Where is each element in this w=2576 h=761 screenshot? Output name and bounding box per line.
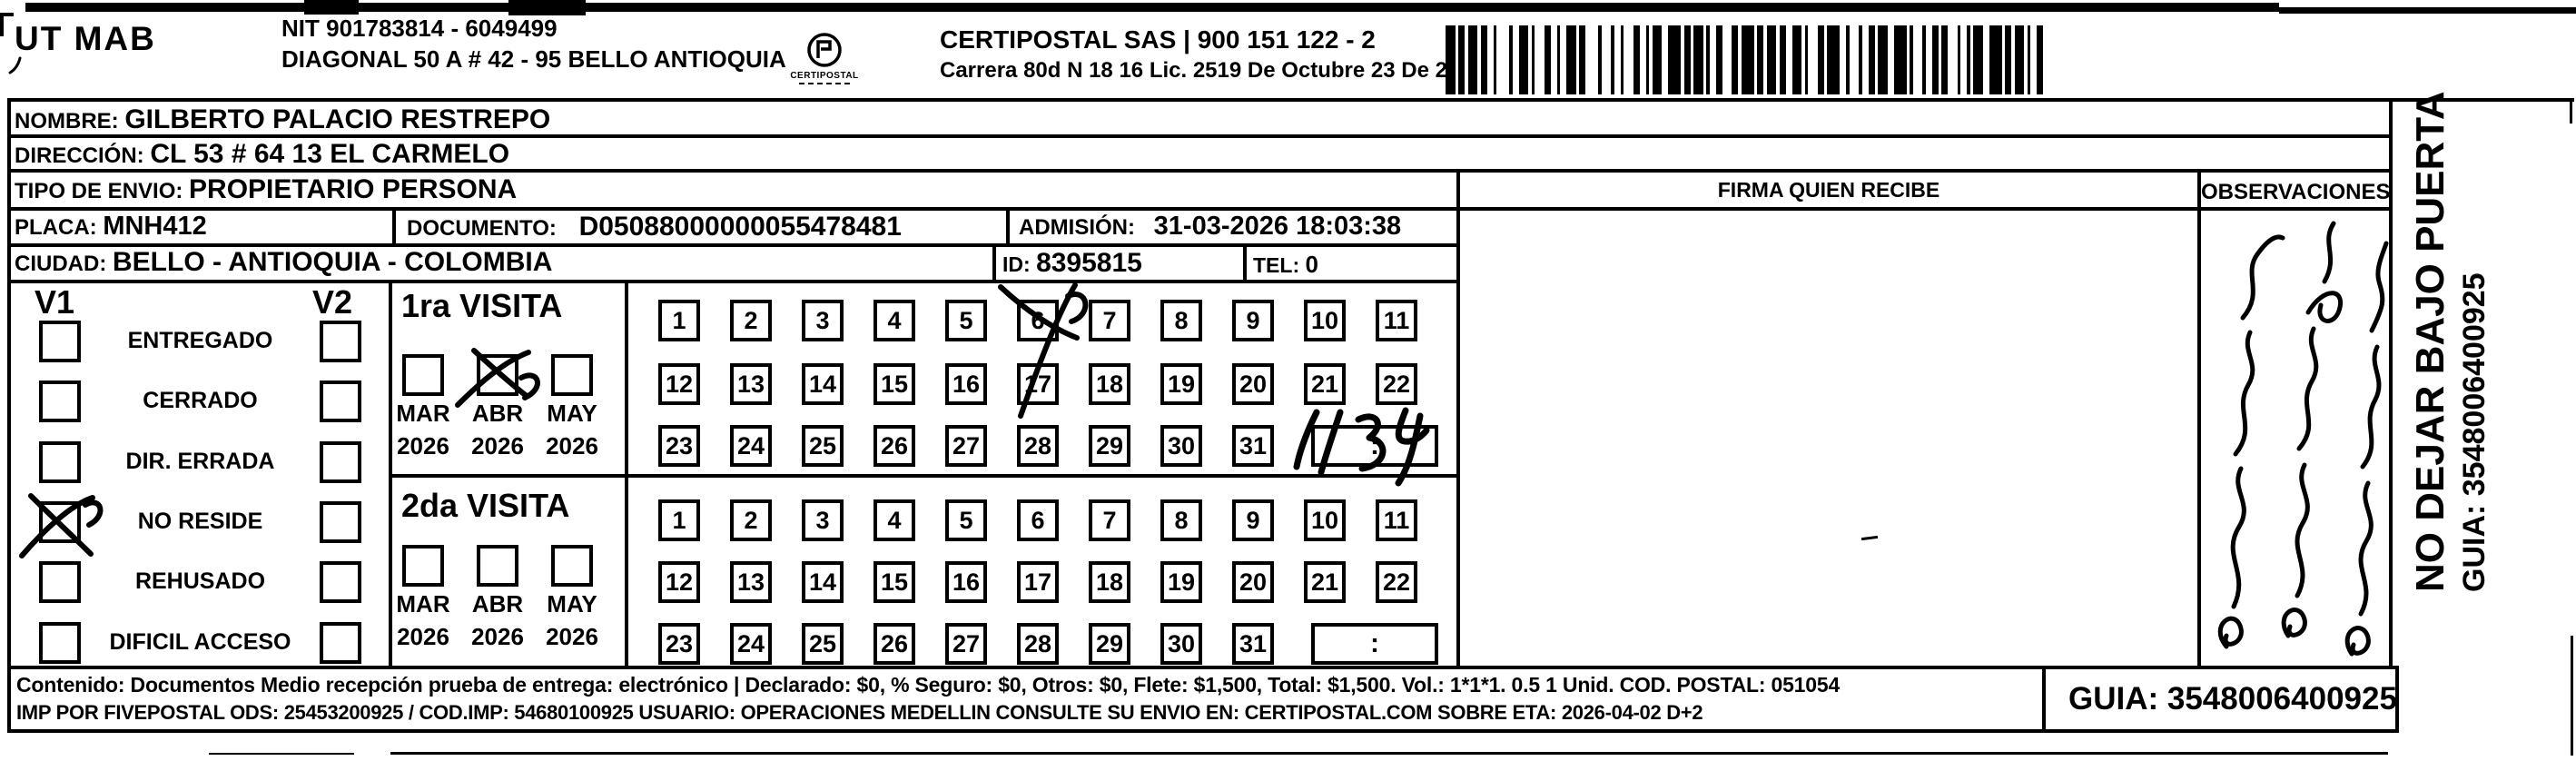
month-checkbox[interactable]	[402, 545, 444, 587]
barcode-bar	[1668, 25, 1681, 94]
barcode-bar	[1716, 25, 1722, 94]
status-row: REHUSADO	[7, 561, 389, 605]
day-cell[interactable]: 12	[658, 363, 700, 405]
scan-artifact	[2570, 100, 2572, 124]
day-cell[interactable]: 20	[1232, 363, 1274, 405]
status-row: DIFICIL ACCESO	[7, 622, 389, 666]
day-cell[interactable]: 21	[1304, 363, 1346, 405]
day-row: 1234567891011	[658, 300, 1417, 341]
day-cell[interactable]: 24	[730, 425, 772, 467]
postal-delivery-label: UT MAB NIT 901783814 - 6049499 DIAGONAL …	[0, 0, 2576, 761]
grid-line	[2042, 666, 2046, 733]
day-cell[interactable]: 17	[1017, 561, 1059, 603]
barcode-bar	[2037, 25, 2043, 94]
footer-content-line: Contenido: Documentos Medio recepción pr…	[16, 673, 1840, 697]
day-cell[interactable]: 19	[1160, 561, 1202, 603]
v1-checkbox[interactable]	[39, 622, 81, 664]
day-cell[interactable]: 20	[1232, 561, 1274, 603]
placa-value: MNH412	[103, 212, 206, 241]
barcode-bar	[2005, 25, 2011, 94]
day-cell[interactable]: 1	[658, 499, 700, 541]
day-cell[interactable]: 4	[873, 300, 915, 341]
day-cell[interactable]: 31	[1232, 623, 1274, 665]
second-visit-panel: 2da VISITA MAR2026ABR2026MAY2026	[389, 479, 625, 667]
tipo-envio-value: PROPIETARIO PERSONA	[189, 174, 517, 204]
scan-artifact	[2279, 7, 2576, 14]
status-row: CERRADO	[7, 380, 389, 424]
barcode-bar	[1932, 25, 1939, 94]
no-dejar-bajo-puerta-text: NO DEJAR BAJO PUERTA	[2408, 106, 2453, 592]
logo-text: CERTIPOSTAL	[788, 71, 861, 81]
day-cell[interactable]: 19	[1160, 363, 1202, 405]
barcode-bar	[1818, 25, 1824, 94]
grid-line	[1006, 207, 1010, 247]
grid-line	[392, 207, 396, 247]
footer-imp-line: IMP POR FIVEPOSTAL ODS: 25453200925 / CO…	[16, 701, 1703, 725]
ciudad-label: CIUDAD:	[15, 252, 113, 276]
day-cell[interactable]: 12	[658, 561, 700, 603]
certipostal-logo-icon: CERTIPOSTAL	[788, 31, 861, 84]
barcode-gap	[1722, 25, 1732, 94]
day-cell[interactable]: 29	[1089, 425, 1130, 467]
barcode-gap	[1614, 25, 1621, 94]
day-cell[interactable]: 28	[1017, 425, 1059, 467]
barcode-gap	[1960, 25, 1967, 94]
status-row: ENTREGADO	[7, 321, 389, 364]
ut-mab-comma-artifact	[10, 58, 20, 73]
month-label: ABR	[466, 590, 529, 618]
day-cell[interactable]: 31	[1232, 425, 1274, 467]
v2-checkbox[interactable]	[320, 561, 361, 603]
barcode-bar	[1481, 25, 1487, 94]
day-cell[interactable]: 14	[802, 363, 844, 405]
status-label: CERRADO	[89, 388, 311, 414]
barcode-gap	[1496, 25, 1509, 94]
placa-label: PLACA:	[15, 215, 103, 240]
day-cell[interactable]: 23	[658, 623, 700, 665]
time-box[interactable]: :	[1311, 425, 1438, 467]
nombre-label: NOMBRE:	[15, 109, 124, 133]
firma-header: FIRMA QUIEN RECIBE	[1460, 178, 2197, 203]
day-cell[interactable]: 17	[1017, 363, 1059, 405]
barcode-bar	[1693, 25, 1703, 94]
barcode-bar	[1519, 25, 1529, 94]
barcode-bar	[1732, 25, 1738, 94]
month-year-label: 2026	[540, 432, 604, 460]
barcode-gap	[1948, 25, 1958, 94]
grid-line	[7, 729, 2399, 733]
day-cell[interactable]: 3	[802, 300, 844, 341]
month-checkbox[interactable]	[551, 545, 593, 587]
time-colon: :	[1370, 628, 1379, 659]
month-label: MAR	[391, 590, 455, 618]
day-cell[interactable]: 28	[1017, 623, 1059, 665]
day-cell[interactable]: 21	[1304, 561, 1346, 603]
day-cell[interactable]: 13	[730, 561, 772, 603]
day-cell[interactable]: 30	[1160, 623, 1202, 665]
barcode-icon	[1446, 25, 2390, 94]
barcode-gap	[1551, 25, 1557, 94]
barcode-gap	[1840, 25, 1846, 94]
barcode-gap	[1662, 25, 1668, 94]
barcode-gap	[1640, 25, 1646, 94]
barcode-gap	[1560, 25, 1566, 94]
tel-value: 0	[1306, 251, 1318, 278]
tel-label: TEL:	[1253, 253, 1306, 277]
day-cell[interactable]: 26	[873, 623, 915, 665]
day-cell[interactable]: 9	[1232, 300, 1274, 341]
barcode-gap	[1862, 25, 1869, 94]
barcode-gap	[1513, 25, 1519, 94]
day-cell[interactable]: 16	[945, 561, 987, 603]
barcode-bar	[1633, 25, 1640, 94]
barcode-bar	[1878, 25, 1888, 94]
day-cell[interactable]: 15	[873, 363, 915, 405]
barcode-gap	[1850, 25, 1860, 94]
logo-underline	[799, 83, 850, 84]
barcode-gap	[1624, 25, 1633, 94]
barcode-bar	[1545, 25, 1551, 94]
day-cell[interactable]: 16	[945, 363, 987, 405]
time-box[interactable]: :	[1311, 623, 1438, 665]
barcode-gap	[1888, 25, 1894, 94]
barcode-gap	[1585, 25, 1598, 94]
barcode-bar	[1973, 25, 1983, 94]
direccion-value: CL 53 # 64 13 EL CARMELO	[150, 139, 509, 169]
v2-column-header: V2	[312, 283, 352, 321]
v1-checkbox[interactable]	[39, 561, 81, 603]
day-cell[interactable]: 15	[873, 561, 915, 603]
documento-label: DOCUMENTO:	[407, 216, 563, 241]
observaciones-area[interactable]	[2201, 211, 2389, 666]
barcode-bar	[1792, 25, 1802, 94]
barcode-gap	[1535, 25, 1545, 94]
first-visit-title: 1ra VISITA	[401, 287, 562, 325]
time-colon: :	[1370, 430, 1379, 461]
sender-code: UT MAB	[15, 20, 156, 58]
barcode-bar	[1894, 25, 1907, 94]
grid-line	[7, 98, 2574, 102]
v1-checkbox[interactable]	[39, 321, 81, 362]
barcode-bar	[1767, 25, 1777, 94]
first-visit-panel: 1ra VISITA MAR2026ABR2026MAY2026	[389, 282, 625, 474]
barcode-bar	[1941, 25, 1948, 94]
day-cell[interactable]: 9	[1232, 499, 1274, 541]
footer-guia: GUIA: 3548006400925	[2068, 681, 2397, 717]
v2-checkbox[interactable]	[320, 380, 361, 422]
day-cell[interactable]: 8	[1160, 499, 1202, 541]
barcode-bar	[1684, 25, 1691, 94]
grid-line	[1243, 243, 1247, 283]
barcode-bar	[1780, 25, 1786, 94]
ciudad-value: BELLO - ANTIOQUIA - COLOMBIA	[113, 247, 552, 277]
day-cell[interactable]: 11	[1376, 300, 1417, 341]
sender-address: DIAGONAL 50 A # 42 - 95 BELLO ANTIOQUIA	[281, 45, 786, 74]
day-cell[interactable]: 2	[730, 300, 772, 341]
v2-checkbox[interactable]	[320, 501, 361, 543]
scan-artifact	[25, 3, 2279, 12]
day-cell[interactable]: 27	[945, 623, 987, 665]
month-checkbox[interactable]	[477, 354, 518, 396]
day-cell[interactable]: 18	[1089, 363, 1130, 405]
barcode-gap	[2030, 25, 2037, 94]
barcode-gap	[1926, 25, 1932, 94]
barcode-bar	[1446, 25, 1456, 94]
v1-column-header: V1	[35, 283, 74, 321]
day-cell[interactable]: 26	[873, 425, 915, 467]
scan-artifact	[0, 13, 14, 16]
scan-artifact	[2571, 636, 2573, 756]
day-row: 232425262728293031:	[658, 425, 1438, 467]
barcode-gap	[1487, 25, 1494, 94]
day-cell[interactable]: 29	[1089, 623, 1130, 665]
admision-value: 31-03-2026 18:03:38	[1154, 212, 1401, 241]
direccion-label: DIRECCIÓN:	[15, 143, 150, 168]
month-label: ABR	[466, 400, 529, 428]
barcode-bar	[1579, 25, 1585, 94]
v1-checkbox[interactable]	[39, 441, 81, 483]
day-row: 232425262728293031:	[658, 623, 1438, 665]
admision-label: ADMISIÓN:	[1019, 215, 1141, 240]
month-year-label: 2026	[391, 623, 455, 651]
month-year-label: 2026	[391, 432, 455, 460]
barcode-gap	[1602, 25, 1612, 94]
barcode-bar	[2015, 25, 2025, 94]
documento-value: D05088000000055478481	[579, 212, 902, 242]
month-year-label: 2026	[466, 432, 529, 460]
day-cell[interactable]: 30	[1160, 425, 1202, 467]
v2-checkbox[interactable]	[320, 622, 361, 664]
day-cell[interactable]: 6	[1017, 300, 1059, 341]
barcode-gap	[1786, 25, 1792, 94]
day-cell[interactable]: 7	[1089, 300, 1130, 341]
status-label: REHUSADO	[89, 568, 311, 595]
grid-line	[992, 243, 996, 283]
status-row: DIR. ERRADA	[7, 441, 389, 485]
status-row: NO RESIDE	[7, 501, 389, 545]
v1-checkbox[interactable]	[39, 501, 81, 543]
observaciones-header: OBSERVACIONES	[2201, 180, 2389, 205]
day-cell[interactable]: 2	[730, 499, 772, 541]
barcode-gap	[2043, 25, 2053, 94]
month-label: MAY	[540, 400, 604, 428]
day-row: 1234567891011	[658, 499, 1417, 541]
barcode-bar	[1458, 25, 1465, 94]
month-year-label: 2026	[540, 623, 604, 651]
scan-artifact	[390, 752, 2388, 755]
barcode-bar	[1827, 25, 1840, 94]
barcode-bar	[1653, 25, 1663, 94]
day-cell[interactable]: 25	[802, 623, 844, 665]
day-cell[interactable]: 10	[1304, 300, 1346, 341]
day-row: 1213141516171819202122	[658, 561, 1417, 603]
day-cell[interactable]: 13	[730, 363, 772, 405]
day-cell[interactable]: 23	[658, 425, 700, 467]
v1-checkbox[interactable]	[39, 380, 81, 422]
scan-artifact	[304, 0, 359, 15]
second-visit-title: 2da VISITA	[401, 487, 569, 525]
id-value: 8395815	[1036, 248, 1142, 278]
barcode-gap	[1983, 25, 1989, 94]
day-cell[interactable]: 7	[1089, 499, 1130, 541]
month-checkbox[interactable]	[551, 354, 593, 396]
nombre-value: GILBERTO PALACIO RESTREPO	[124, 104, 550, 134]
barcode-gap	[1913, 25, 1923, 94]
side-guia-text: GUIA: 3548006400925	[2457, 106, 2492, 592]
month-checkbox[interactable]	[477, 545, 518, 587]
month-label: MAY	[540, 590, 604, 618]
scan-artifact	[209, 753, 354, 755]
day-cell[interactable]: 22	[1376, 561, 1417, 603]
visit-day-grids: 1234567891011121314151617181920212223242…	[625, 282, 1456, 667]
day-cell[interactable]: 5	[945, 300, 987, 341]
day-cell[interactable]: 4	[873, 499, 915, 541]
side-note: NO DEJAR BAJO PUERTA GUIA: 3548006400925	[2408, 106, 2492, 592]
company-line: CERTIPOSTAL SAS | 900 151 122 - 2	[940, 25, 1376, 54]
month-label: MAR	[391, 400, 455, 428]
month-checkbox[interactable]	[402, 354, 444, 396]
barcode-bar	[1566, 25, 1576, 94]
barcode-bar	[1989, 25, 2002, 94]
day-cell[interactable]: 5	[945, 499, 987, 541]
barcode-bar	[1757, 25, 1763, 94]
barcode-gap	[1808, 25, 1818, 94]
day-cell[interactable]: 6	[1017, 499, 1059, 541]
status-panel: V1 V2 ENTREGADOCERRADODIR. ERRADANO RESI…	[7, 282, 389, 667]
day-cell[interactable]: 11	[1376, 499, 1417, 541]
firma-area[interactable]	[1460, 211, 2197, 666]
barcode-bar	[1869, 25, 1875, 94]
day-row: 1213141516171819202122	[658, 363, 1417, 405]
scan-artifact	[508, 0, 586, 15]
v2-checkbox[interactable]	[320, 441, 361, 483]
sender-nit: NIT 901783814 - 6049499	[281, 15, 558, 43]
day-cell[interactable]: 22	[1376, 363, 1417, 405]
day-cell[interactable]: 25	[802, 425, 844, 467]
day-cell[interactable]: 1	[658, 300, 700, 341]
status-label: ENTREGADO	[89, 328, 311, 354]
day-cell[interactable]: 27	[945, 425, 987, 467]
day-cell[interactable]: 10	[1304, 499, 1346, 541]
day-cell[interactable]: 18	[1089, 561, 1130, 603]
tipo-envio-label: TIPO DE ENVIO:	[15, 179, 189, 203]
day-cell[interactable]: 3	[802, 499, 844, 541]
barcode-bar	[1468, 25, 1478, 94]
status-label: NO RESIDE	[89, 509, 311, 535]
day-cell[interactable]: 24	[730, 623, 772, 665]
barcode-bar	[1742, 25, 1754, 94]
day-cell[interactable]: 8	[1160, 300, 1202, 341]
id-label: ID:	[1002, 252, 1036, 276]
barcode-gap	[1710, 25, 1716, 94]
status-label: DIR. ERRADA	[89, 449, 311, 475]
v2-checkbox[interactable]	[320, 321, 361, 362]
day-cell[interactable]: 14	[802, 561, 844, 603]
status-label: DIFICIL ACCESO	[89, 629, 311, 656]
month-year-label: 2026	[466, 623, 529, 651]
company-address: Carrera 80d N 18 16 Lic. 2519 De Octubre…	[940, 58, 1484, 84]
